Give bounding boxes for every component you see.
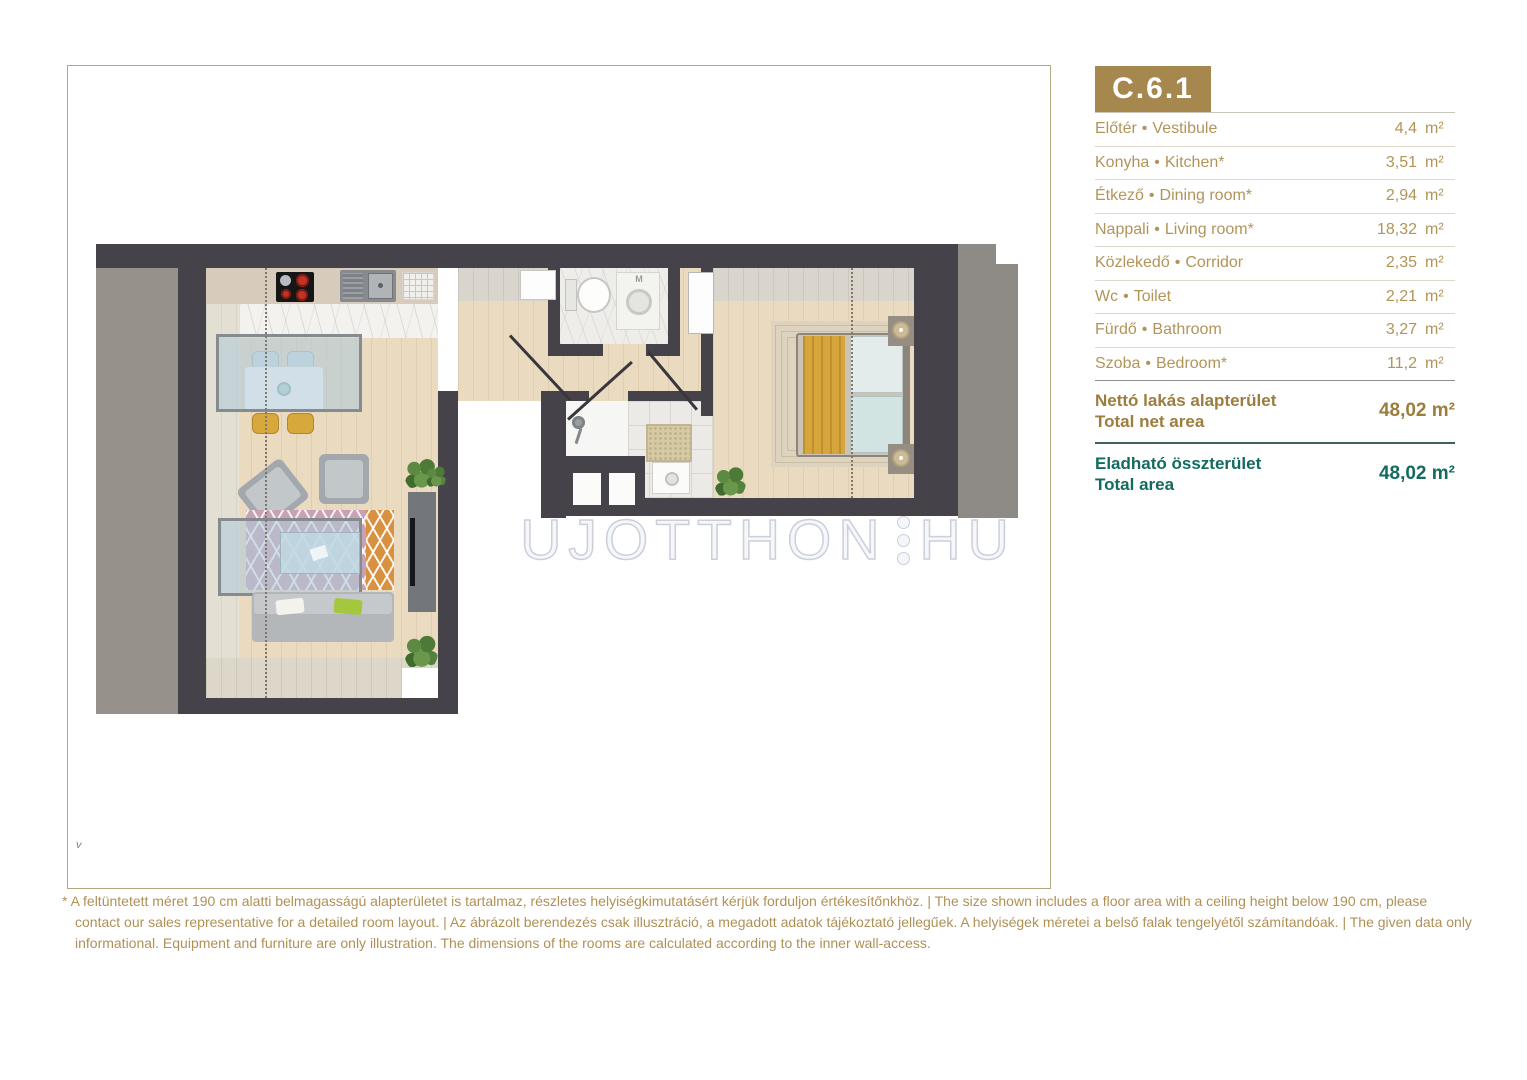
washbasin [652, 462, 690, 494]
room-label: Fürdő • Bathroom [1095, 321, 1365, 339]
floor-plan: M UJOTTHON HU v [67, 65, 1051, 889]
living-room-rug-orange [366, 510, 394, 590]
double-bed [796, 333, 910, 457]
label-separator: • [1142, 321, 1148, 339]
room-area-unit: m² [1425, 120, 1455, 138]
room-area-unit: m² [1425, 321, 1455, 339]
room-area-unit: m² [1425, 221, 1455, 239]
wall [668, 268, 680, 356]
hall-closet [520, 270, 556, 300]
label-separator: • [1123, 288, 1129, 306]
outside-notch [996, 244, 1018, 264]
toilet-tank [565, 279, 577, 311]
corner-mark: v [75, 839, 83, 852]
room-row: Nappali • Living room* 18,32 m² [1095, 214, 1455, 248]
pillow [333, 598, 362, 615]
pillow [275, 598, 304, 616]
total-net-label-en: Total net area [1095, 411, 1379, 432]
ceiling-height-line [851, 268, 853, 498]
outside-area-left [96, 244, 184, 714]
watermark-dots-icon [897, 516, 910, 565]
stove-icon [276, 272, 314, 302]
disclaimer-text: * A feltüntetett méret 190 cm alatti bel… [62, 891, 1475, 954]
bed-blanket [803, 336, 845, 454]
room-name-hu: Közlekedő [1095, 254, 1170, 272]
room-area-unit: m² [1425, 288, 1455, 306]
total-area-value: 48,02 m² [1379, 463, 1455, 485]
stairwell-cutout [446, 401, 541, 516]
shower-head-icon [572, 416, 585, 429]
unit-code-badge: C.6.1 [1095, 66, 1211, 112]
total-area-row: Eladható összterület Total area 48,02 m² [1095, 444, 1455, 505]
low-ceiling-floor-band [206, 268, 240, 698]
room-area-unit: m² [1425, 355, 1455, 373]
label-separator: • [1175, 254, 1181, 272]
stove-burner [296, 289, 308, 301]
bath-mat [646, 424, 692, 462]
label-separator: • [1149, 187, 1155, 205]
total-net-value: 48,02 m² [1379, 400, 1455, 422]
room-row: Előtér • Vestibule 4,4 m² [1095, 113, 1455, 147]
room-name-en: Vestibule [1152, 120, 1217, 138]
plant [426, 464, 446, 490]
room-name-hu: Konyha [1095, 154, 1149, 172]
label-separator: • [1154, 221, 1160, 239]
dining-chair [287, 413, 314, 434]
room-area-value: 2,94 [1365, 187, 1417, 205]
room-area-unit: m² [1425, 154, 1455, 172]
room-area-unit: m² [1425, 187, 1455, 205]
armchair [319, 454, 369, 504]
total-net-labels: Nettó lakás alapterület Total net area [1095, 390, 1379, 433]
kitchen-sink [340, 270, 396, 302]
room-area-value: 3,27 [1365, 321, 1417, 339]
room-name-hu: Étkező [1095, 187, 1144, 205]
watermark-dot [897, 534, 910, 547]
kitchen-marble-counter [240, 304, 438, 338]
room-label: Étkező • Dining room* [1095, 187, 1365, 205]
watermark: UJOTTHON HU [544, 504, 992, 576]
tv-stand [408, 492, 436, 612]
wall [548, 344, 603, 356]
room-rows: Előtér • Vestibule 4,4 m² Konyha • Kitch… [1095, 113, 1455, 381]
toilet [577, 277, 611, 313]
label-separator: • [1145, 355, 1151, 373]
room-row: Konyha • Kitchen* 3,51 m² [1095, 147, 1455, 181]
room-label: Nappali • Living room* [1095, 221, 1365, 239]
watermark-text-left: UJOTTHON [520, 507, 886, 573]
room-row: Étkező • Dining room* 2,94 m² [1095, 180, 1455, 214]
watermark-dot [897, 516, 910, 529]
wall [628, 391, 713, 401]
room-name-en: Corridor [1185, 254, 1243, 272]
wall [96, 244, 958, 268]
plant [404, 632, 438, 672]
room-area-value: 18,32 [1365, 221, 1417, 239]
total-area-labels: Eladható összterület Total area [1095, 453, 1379, 496]
stove-burner [296, 274, 309, 287]
low-ceiling-floor-band [713, 268, 914, 301]
wall [178, 698, 454, 714]
room-label: Wc • Toilet [1095, 288, 1365, 306]
wall [178, 268, 206, 714]
plant [714, 464, 746, 500]
lamp-icon [892, 449, 910, 467]
room-area-table: Előtér • Vestibule 4,4 m² Konyha • Kitch… [1095, 112, 1455, 504]
watermark-text-right: HU [920, 507, 1016, 573]
room-name-hu: Fürdő [1095, 321, 1137, 339]
room-area-value: 11,2 [1365, 355, 1417, 373]
room-name-en: Bedroom* [1156, 355, 1227, 373]
room-row: Fürdő • Bathroom 3,27 m² [1095, 314, 1455, 348]
wall [438, 391, 458, 714]
room-name-en: Living room* [1165, 221, 1254, 239]
room-area-value: 2,35 [1365, 254, 1417, 272]
wall-alcove [402, 668, 438, 698]
washbasin-bowl [665, 472, 679, 486]
tv [410, 518, 415, 586]
bathroom-cabinet [609, 473, 635, 505]
room-label: Szoba • Bedroom* [1095, 355, 1365, 373]
room-area-value: 4,4 [1365, 120, 1417, 138]
room-label: Konyha • Kitchen* [1095, 154, 1365, 172]
sofa [252, 592, 394, 642]
room-name-hu: Szoba [1095, 355, 1140, 373]
room-name-hu: Nappali [1095, 221, 1149, 239]
coffee-table [280, 532, 360, 574]
room-row: Wc • Toilet 2,21 m² [1095, 281, 1455, 315]
room-row: Közlekedő • Corridor 2,35 m² [1095, 247, 1455, 281]
room-row: Szoba • Bedroom* 11,2 m² [1095, 348, 1455, 382]
wall [914, 244, 958, 516]
room-area-value: 3,51 [1365, 154, 1417, 172]
room-area-value: 2,21 [1365, 288, 1417, 306]
total-area-label-en: Total area [1095, 474, 1379, 495]
room-name-hu: Wc [1095, 288, 1118, 306]
total-area-label-hu: Eladható összterület [1095, 453, 1379, 474]
watermark-dot [897, 552, 910, 565]
room-name-en: Bathroom [1152, 321, 1221, 339]
roof-window [216, 334, 362, 412]
stove-burner [281, 289, 291, 299]
washer-label: M [617, 274, 661, 284]
label-separator: • [1142, 120, 1148, 138]
total-net-area-row: Nettó lakás alapterület Total net area 4… [1095, 381, 1455, 442]
room-name-en: Dining room* [1160, 187, 1252, 205]
sink-drain [378, 283, 383, 288]
lamp-icon [892, 321, 910, 339]
outside-area-right [958, 244, 1018, 518]
room-label: Közlekedő • Corridor [1095, 254, 1365, 272]
room-name-hu: Előtér [1095, 120, 1137, 138]
unit-info-panel: C.6.1 Előtér • Vestibule 4,4 m² Konyha •… [1095, 66, 1455, 504]
nightstand [888, 444, 914, 474]
nightstand [888, 316, 914, 346]
room-name-en: Toilet [1134, 288, 1171, 306]
bedroom-door [688, 272, 714, 334]
kitchen-appliance [402, 272, 434, 300]
room-name-en: Kitchen* [1165, 154, 1225, 172]
bathroom-cabinet [573, 473, 601, 505]
washer-door [626, 289, 652, 315]
ceiling-height-line [265, 268, 267, 698]
room-label: Előtér • Vestibule [1095, 120, 1365, 138]
total-net-label-hu: Nettó lakás alapterület [1095, 390, 1379, 411]
washing-machine: M [616, 272, 660, 330]
label-separator: • [1154, 154, 1160, 172]
stove-dial [280, 275, 291, 286]
room-area-unit: m² [1425, 254, 1455, 272]
